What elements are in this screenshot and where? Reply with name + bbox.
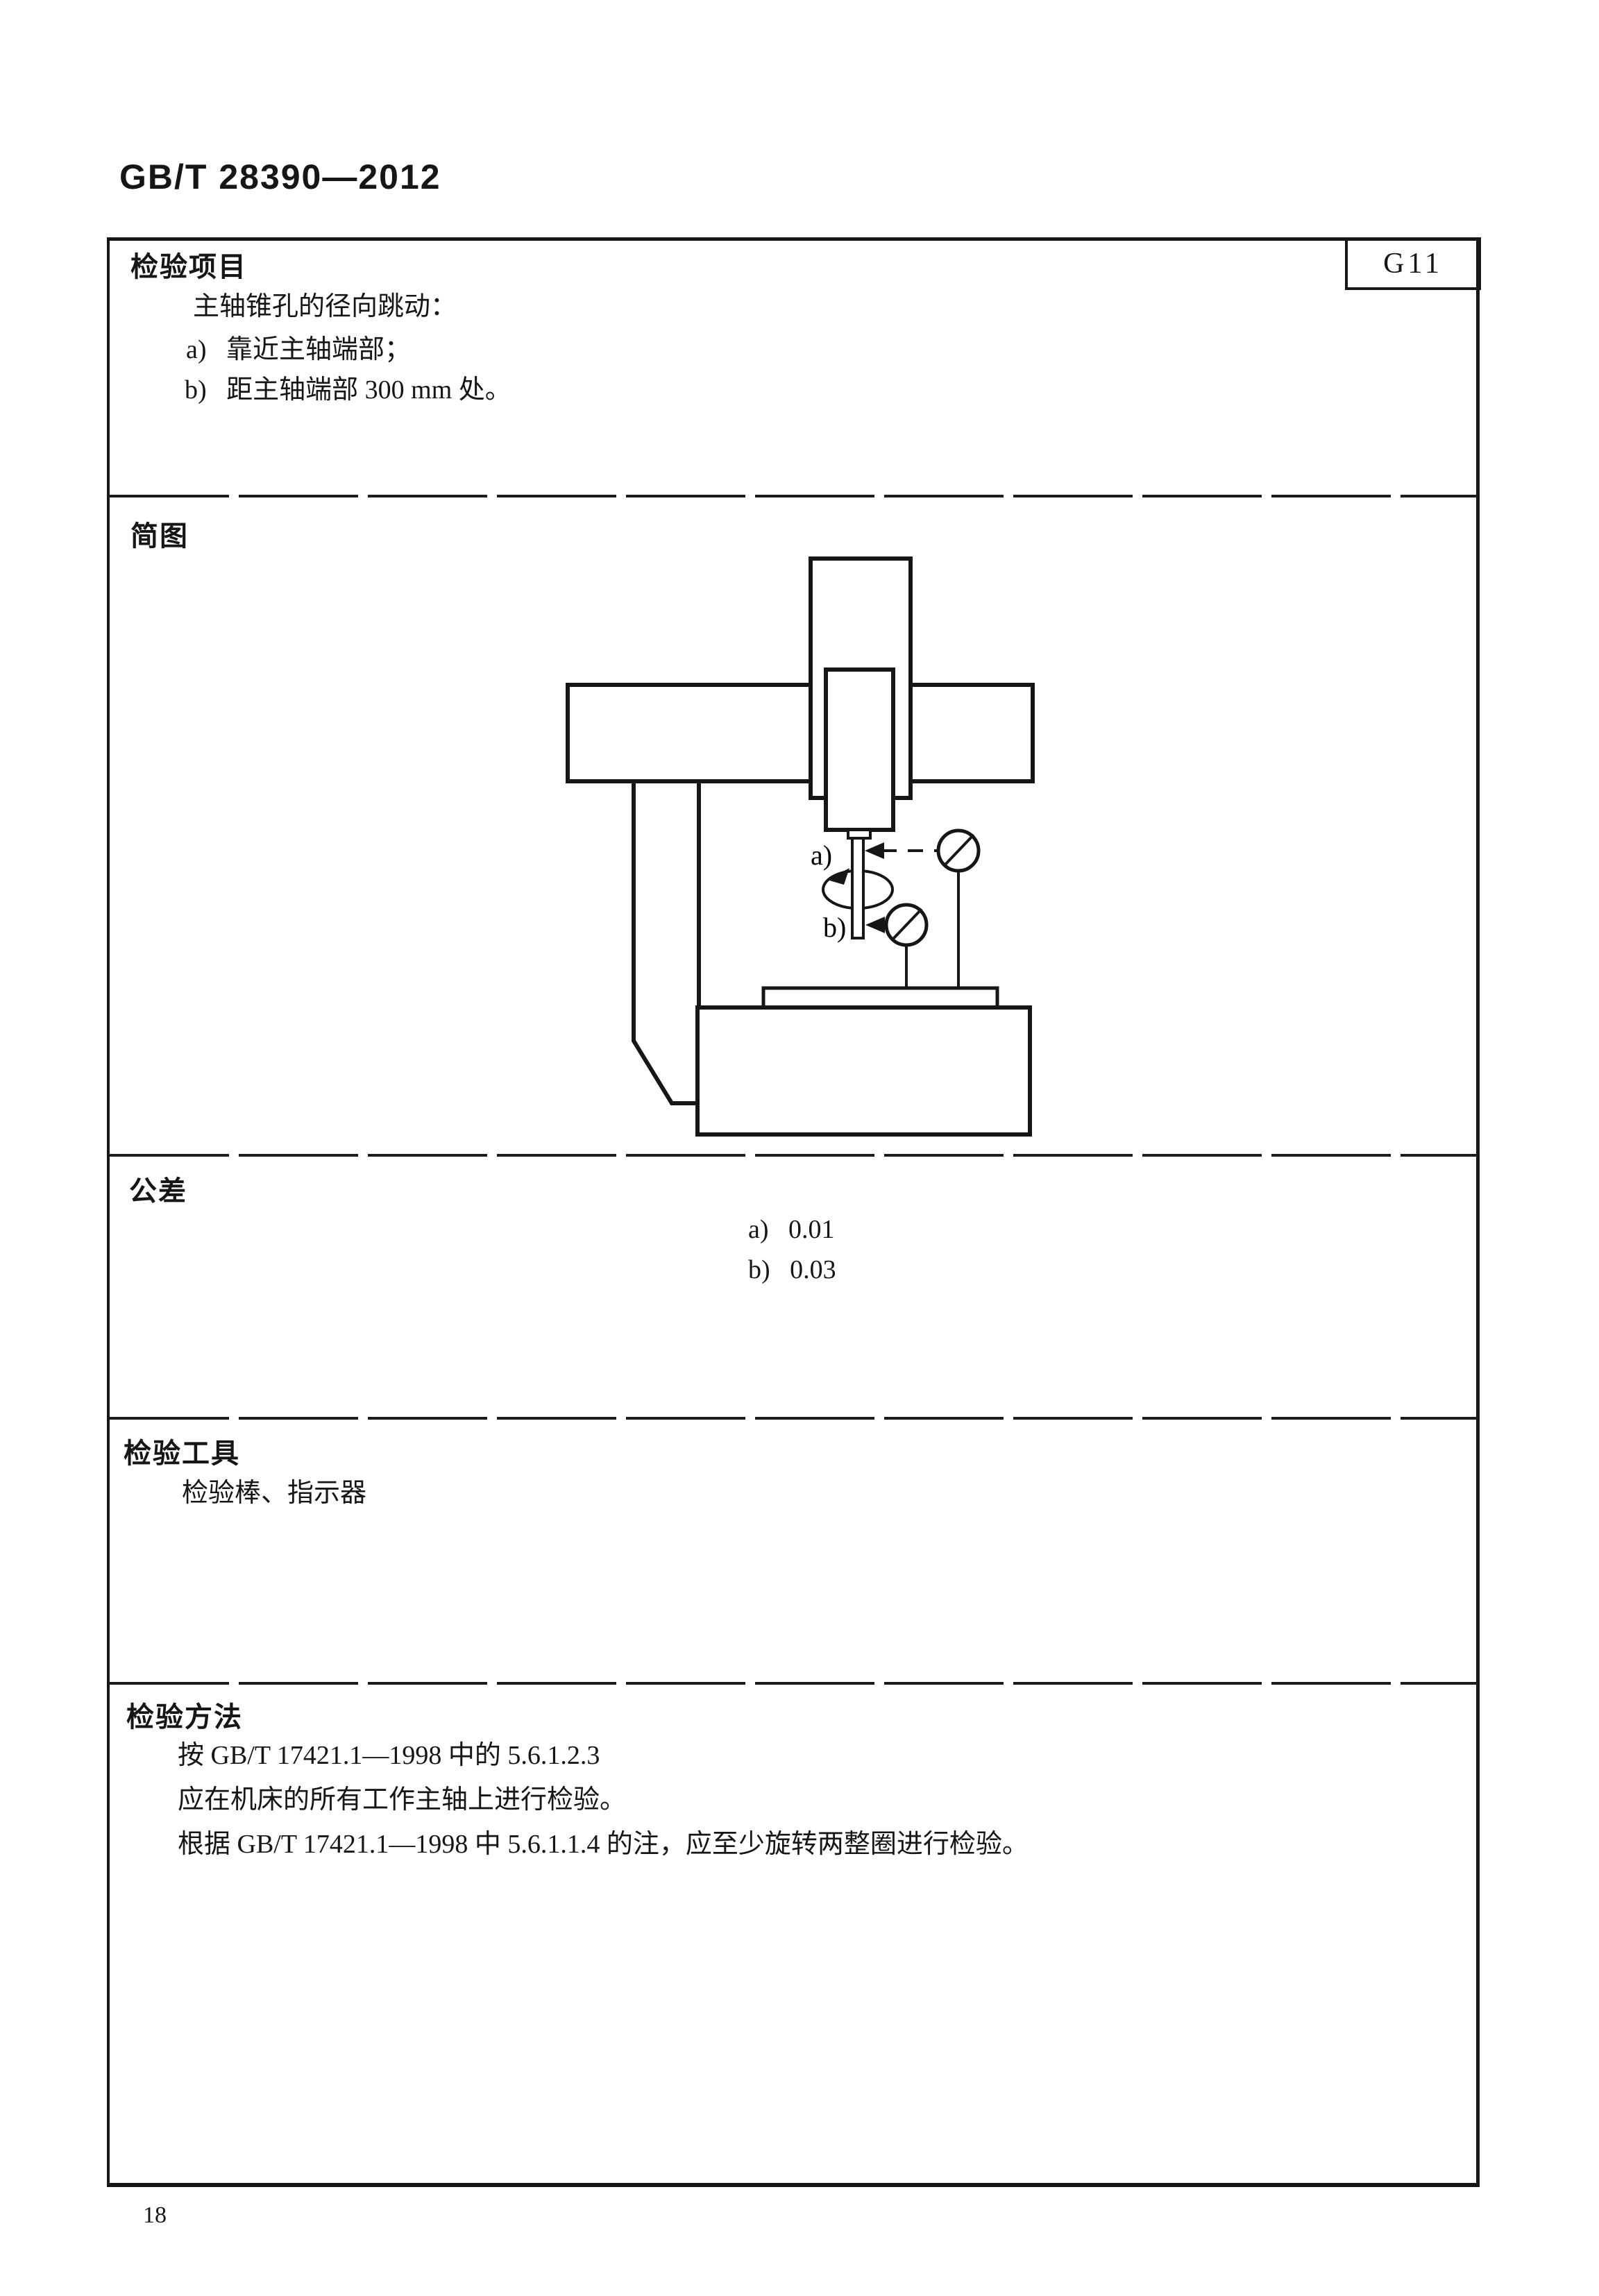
standard-number: GB/T 28390—2012 [119,157,441,197]
crossrail [568,685,1033,781]
section-divider-1 [110,495,1478,498]
probe-b-arrowhead [865,917,885,933]
inspection-table-frame [107,237,1480,2187]
section-label-diagram: 简图 [130,513,189,554]
check-code-text: G11 [1383,247,1443,280]
method-line-1: 按 GB/T 17421.1—1998 中的 5.6.1.2.3 [178,1733,600,1771]
check-code-badge: G11 [1345,237,1481,290]
spindle-quill [826,670,893,830]
tolerance-value-a: a) 0.01 [748,1214,835,1245]
tools-content: 检验棒、指示器 [182,1471,366,1509]
tolerance-value-b: b) 0.03 [748,1255,836,1285]
machine-base [697,1007,1030,1134]
work-table [763,988,997,1007]
section-label-tolerance: 公差 [129,1168,187,1209]
section-label-method: 检验方法 [126,1694,243,1735]
page-number: 18 [143,2202,167,2229]
section-label-inspection-item: 检验项目 [130,244,247,284]
method-line-2: 应在机床的所有工作主轴上进行检验。 [178,1778,626,1816]
probe-a-arrowhead [865,842,884,859]
column-outline [634,781,697,1103]
section-divider-3 [110,1417,1478,1420]
inspection-item-b: b) 距主轴端部 300 mm 处。 [185,368,511,406]
section-label-tools: 检验工具 [124,1431,240,1471]
inspection-item-a: a) 靠近主轴端部； [186,328,411,366]
diagram-callout-a: a) [811,840,832,871]
method-line-3: 根据 GB/T 17421.1—1998 中 5.6.1.1.4 的注，应至少旋… [178,1822,1029,1860]
machine-schematic: a) b) [541,548,1069,1173]
document-page: GB/T 28390—2012 G11 检验项目 主轴锥孔的径向跳动： a) 靠… [0,0,1599,2296]
section-divider-4 [110,1682,1478,1685]
diagram-callout-b: b) [823,912,846,943]
inspection-item-intro: 主轴锥孔的径向跳动： [193,284,457,323]
test-bar [852,838,863,938]
section-divider-2 [110,1154,1478,1157]
